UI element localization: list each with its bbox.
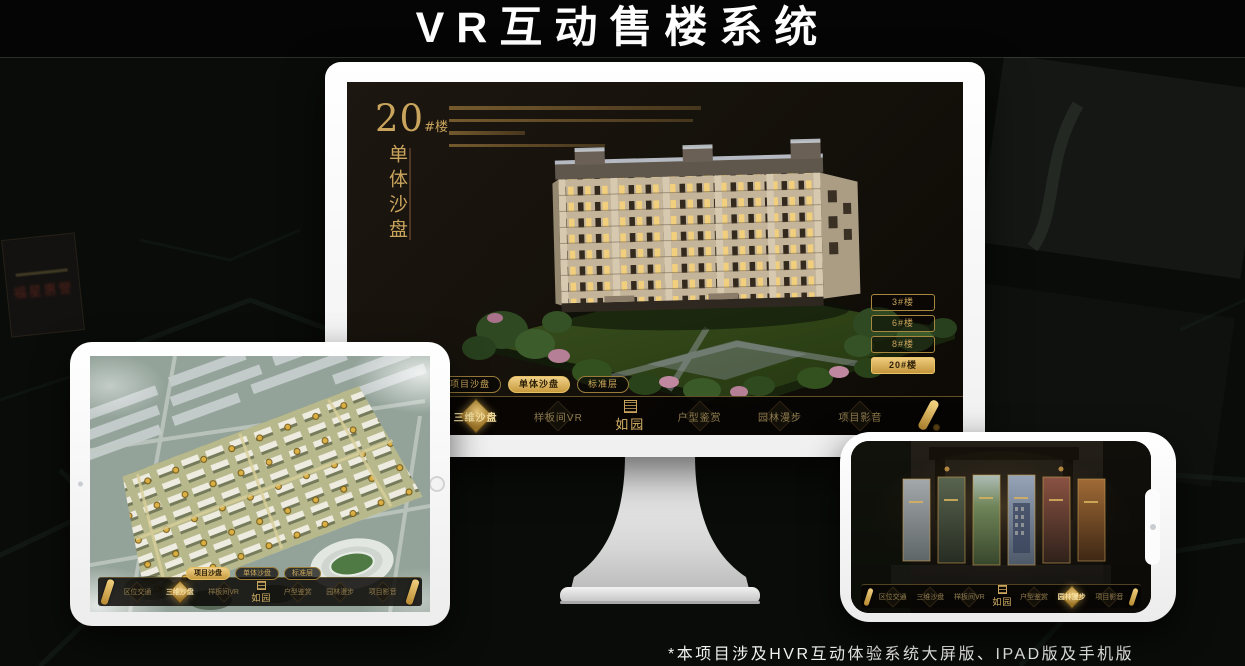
scroll-handle-right (1128, 587, 1138, 606)
tab-label: 标准层 (588, 379, 618, 389)
tab-standard-floor[interactable]: 标准层 (577, 376, 629, 393)
tablet-menu-item-model-room-vr[interactable]: 样板间VR (206, 586, 241, 598)
tablet-menu-item-location-traffic[interactable]: 区位交通 (121, 586, 153, 598)
tablet-camera-icon (78, 482, 83, 487)
tab-label: 项目沙盘 (194, 570, 222, 577)
phone-notch (1145, 489, 1160, 565)
seal-icon (624, 400, 637, 413)
scroll-icon[interactable] (915, 401, 941, 431)
building-button-label: 3#楼 (892, 297, 914, 307)
phone-menu-item-garden-walk[interactable]: 园林漫步 (1056, 591, 1088, 603)
seal-icon (998, 585, 1007, 594)
building-button-label: 20#楼 (889, 360, 917, 370)
building-button-label: 6#楼 (892, 318, 914, 328)
building-selector: 3#楼 6#楼 8#楼 20#楼 (871, 294, 935, 374)
menu-item-garden-walk[interactable]: 园林漫步 (754, 407, 806, 426)
brand-logo: 如园 (615, 400, 645, 433)
menu-item-label: 园林漫步 (1058, 594, 1086, 601)
tablet-mockup: 项目沙盘 单体沙盘 标准层 区位交通 三维沙盘 样板间VR 如园 户型鉴赏 园林… (70, 342, 450, 626)
plaque-brand-text: 福星惠誉 (13, 277, 75, 302)
tablet-menu-item-garden-walk[interactable]: 园林漫步 (324, 586, 356, 598)
menu-item-model-room-vr[interactable]: 样板间VR (530, 407, 587, 426)
brand-logo-text: 如园 (615, 414, 645, 433)
scroll-handle-left (100, 579, 115, 606)
phone-camera-icon (1150, 524, 1156, 530)
tab-label: 单体沙盘 (243, 570, 271, 577)
plaque-subtitle-line (16, 268, 68, 276)
sandbox-tabs: 项目沙盘 单体沙盘 标准层 (439, 376, 629, 393)
tablet-tab-standard-floor[interactable]: 标准层 (284, 567, 321, 580)
phone-menu-item-project-media[interactable]: 项目影音 (1093, 591, 1125, 603)
menu-item-label: 三维沙盘 (916, 594, 944, 601)
menu-item-label: 三维沙盘 (166, 589, 194, 596)
menu-item-project-media[interactable]: 项目影音 (834, 407, 886, 426)
phone-menu-item-model-room-vr[interactable]: 样板间VR (952, 591, 987, 603)
tab-label: 标准层 (292, 570, 313, 577)
tab-single-sandbox[interactable]: 单体沙盘 (508, 376, 570, 393)
tab-label: 项目沙盘 (450, 379, 490, 389)
building-button-20[interactable]: 20#楼 (871, 357, 935, 374)
menu-item-label: 园林漫步 (758, 413, 802, 424)
description-line (449, 106, 701, 110)
tablet-screen: 项目沙盘 单体沙盘 标准层 区位交通 三维沙盘 样板间VR 如园 户型鉴赏 园林… (90, 356, 430, 612)
menu-item-label: 样板间VR (534, 413, 583, 424)
description-line (449, 119, 693, 123)
menu-item-label: 区位交通 (879, 594, 907, 601)
brand-logo: 如园 (251, 581, 271, 604)
menu-item-label: 户型鉴赏 (284, 589, 312, 596)
tablet-menu-item-3d-sandbox[interactable]: 三维沙盘 (164, 586, 196, 598)
scroll-handle-left (863, 587, 873, 606)
menu-item-label: 项目影音 (369, 589, 397, 596)
brand-logo: 如园 (992, 585, 1012, 608)
phone-mockup: 区位交通 三维沙盘 样板间VR 如园 户型鉴赏 园林漫步 项目影音 (840, 432, 1176, 622)
menu-item-label: 三维沙盘 (454, 413, 498, 424)
menu-item-label: 园林漫步 (326, 589, 354, 596)
scroll-handle-right (405, 579, 420, 606)
menu-item-label: 项目影音 (838, 413, 882, 424)
phone-bottom-bar: 区位交通 三维沙盘 样板间VR 如园 户型鉴赏 园林漫步 项目影音 (861, 584, 1141, 608)
tablet-home-button[interactable] (429, 476, 445, 492)
tab-label: 单体沙盘 (519, 379, 559, 389)
building-button-label: 8#楼 (892, 339, 914, 349)
menu-item-label: 样板间VR (208, 589, 239, 596)
brand-logo-text: 如园 (251, 591, 271, 604)
phone-menu-item-location-traffic[interactable]: 区位交通 (877, 591, 909, 603)
menu-item-label: 户型鉴赏 (678, 413, 722, 424)
building-button-6[interactable]: 6#楼 (871, 315, 935, 332)
building-button-8[interactable]: 8#楼 (871, 336, 935, 353)
tablet-bottom-bar: 项目沙盘 单体沙盘 标准层 区位交通 三维沙盘 样板间VR 如园 户型鉴赏 园林… (98, 577, 422, 606)
tablet-menubar: 区位交通 三维沙盘 样板间VR 如园 户型鉴赏 园林漫步 项目影音 (98, 577, 422, 606)
phone-menu-item-3d-sandbox[interactable]: 三维沙盘 (914, 591, 946, 603)
monitor-stand (550, 455, 770, 613)
phone-menubar: 区位交通 三维沙盘 样板间VR 如园 户型鉴赏 园林漫步 项目影音 (861, 584, 1141, 608)
tablet-menu-item-floorplan-gallery[interactable]: 户型鉴赏 (282, 586, 314, 598)
title-divider (0, 57, 1245, 58)
tablet-menu-item-project-media[interactable]: 项目影音 (367, 586, 399, 598)
page-title: VR互动售楼系统 (0, 2, 1245, 54)
tablet-sandbox-tabs: 项目沙盘 单体沙盘 标准层 (186, 567, 321, 580)
brand-logo-text: 如园 (992, 595, 1012, 608)
footnote: *本项目涉及HVR互动体验系统大屏版、IPAD版及手机版 (668, 640, 1134, 664)
menu-item-3d-sandbox[interactable]: 三维沙盘 (450, 407, 502, 426)
phone-screen: 区位交通 三维沙盘 样板间VR 如园 户型鉴赏 园林漫步 项目影音 (851, 441, 1151, 613)
menu-item-label: 区位交通 (123, 589, 151, 596)
seal-icon (257, 581, 266, 590)
phone-menu-item-floorplan-gallery[interactable]: 户型鉴赏 (1018, 591, 1050, 603)
background-plaque: 福星惠誉 (1, 232, 85, 337)
menu-item-floorplan-gallery[interactable]: 户型鉴赏 (674, 407, 726, 426)
building-button-3[interactable]: 3#楼 (871, 294, 935, 311)
tablet-tab-single-sandbox[interactable]: 单体沙盘 (235, 567, 279, 580)
promo-canvas: 福星惠誉 VR互动售楼系统 20#楼 单体沙盘 (0, 0, 1245, 666)
scroll-tip (933, 424, 940, 431)
menu-item-label: 样板间VR (954, 594, 985, 601)
tablet-tab-project-sandbox[interactable]: 项目沙盘 (186, 567, 230, 580)
menu-item-label: 项目影音 (1095, 594, 1123, 601)
menu-item-label: 户型鉴赏 (1020, 594, 1048, 601)
